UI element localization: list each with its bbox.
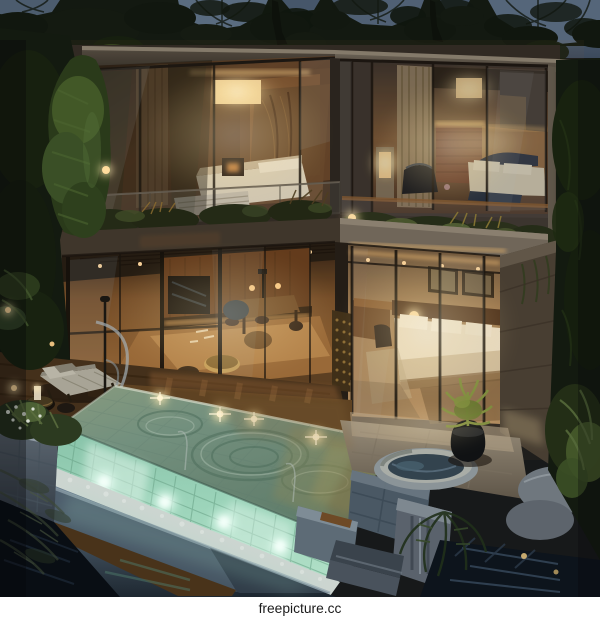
- svg-text:freepicture.cc: freepicture.cc: [259, 601, 342, 616]
